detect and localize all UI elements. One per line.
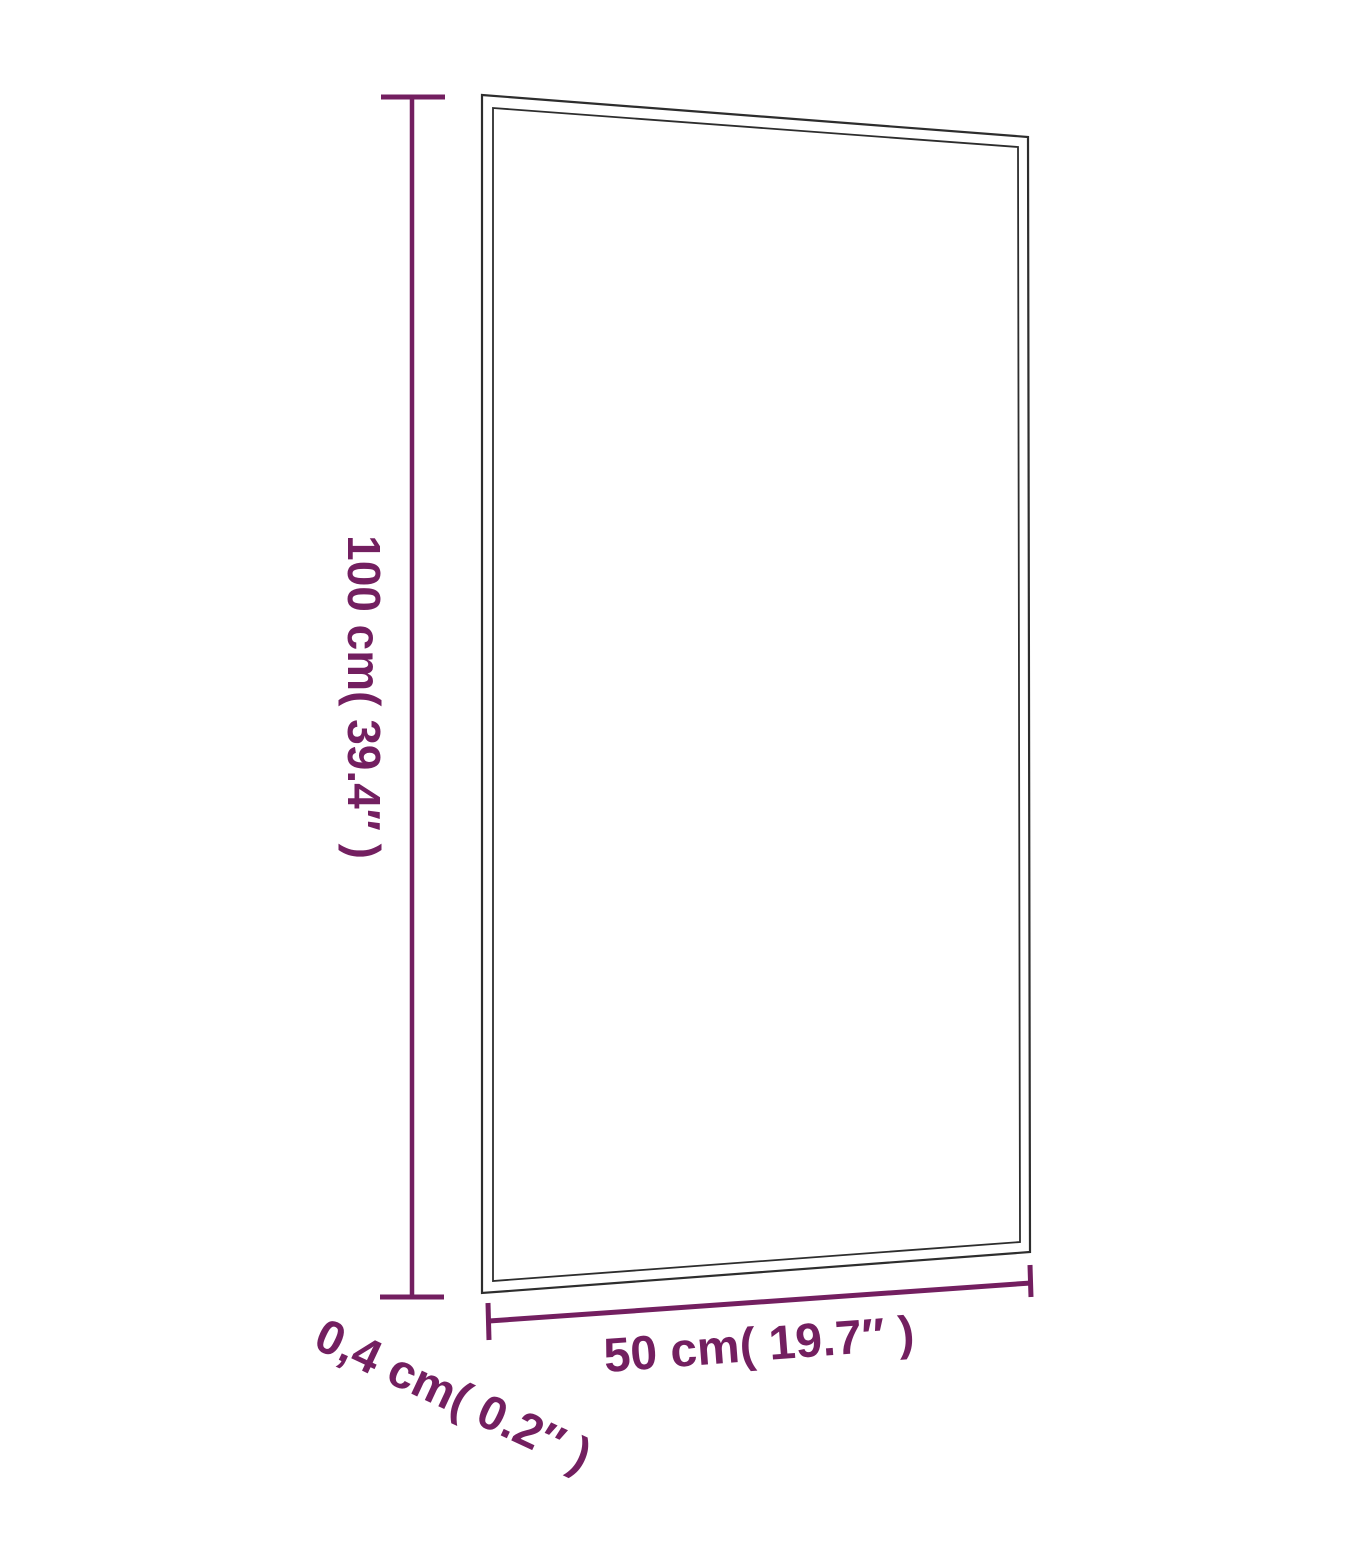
diagram-canvas: 100 cm( 39.4″ ) 50 cm( 19.7″ ) 0,4 cm( 0… [0,0,1360,1555]
width-dimension-tick-left [488,1303,489,1340]
height-dimension: 100 cm( 39.4″ ) [338,97,445,1297]
width-dimension-line [489,1283,1031,1321]
dimension-diagram: 100 cm( 39.4″ ) 50 cm( 19.7″ ) 0,4 cm( 0… [0,0,1360,1555]
panel-outer-outline [482,95,1030,1293]
height-dimension-label: 100 cm( 39.4″ ) [338,535,390,859]
width-dimension-tick-right [1030,1265,1031,1297]
depth-dimension-label: 0,4 cm( 0.2″ ) [307,1309,599,1483]
depth-dimension: 0,4 cm( 0.2″ ) [307,1309,599,1483]
width-dimension-label: 50 cm( 19.7″ ) [602,1307,916,1383]
panel [482,95,1030,1293]
